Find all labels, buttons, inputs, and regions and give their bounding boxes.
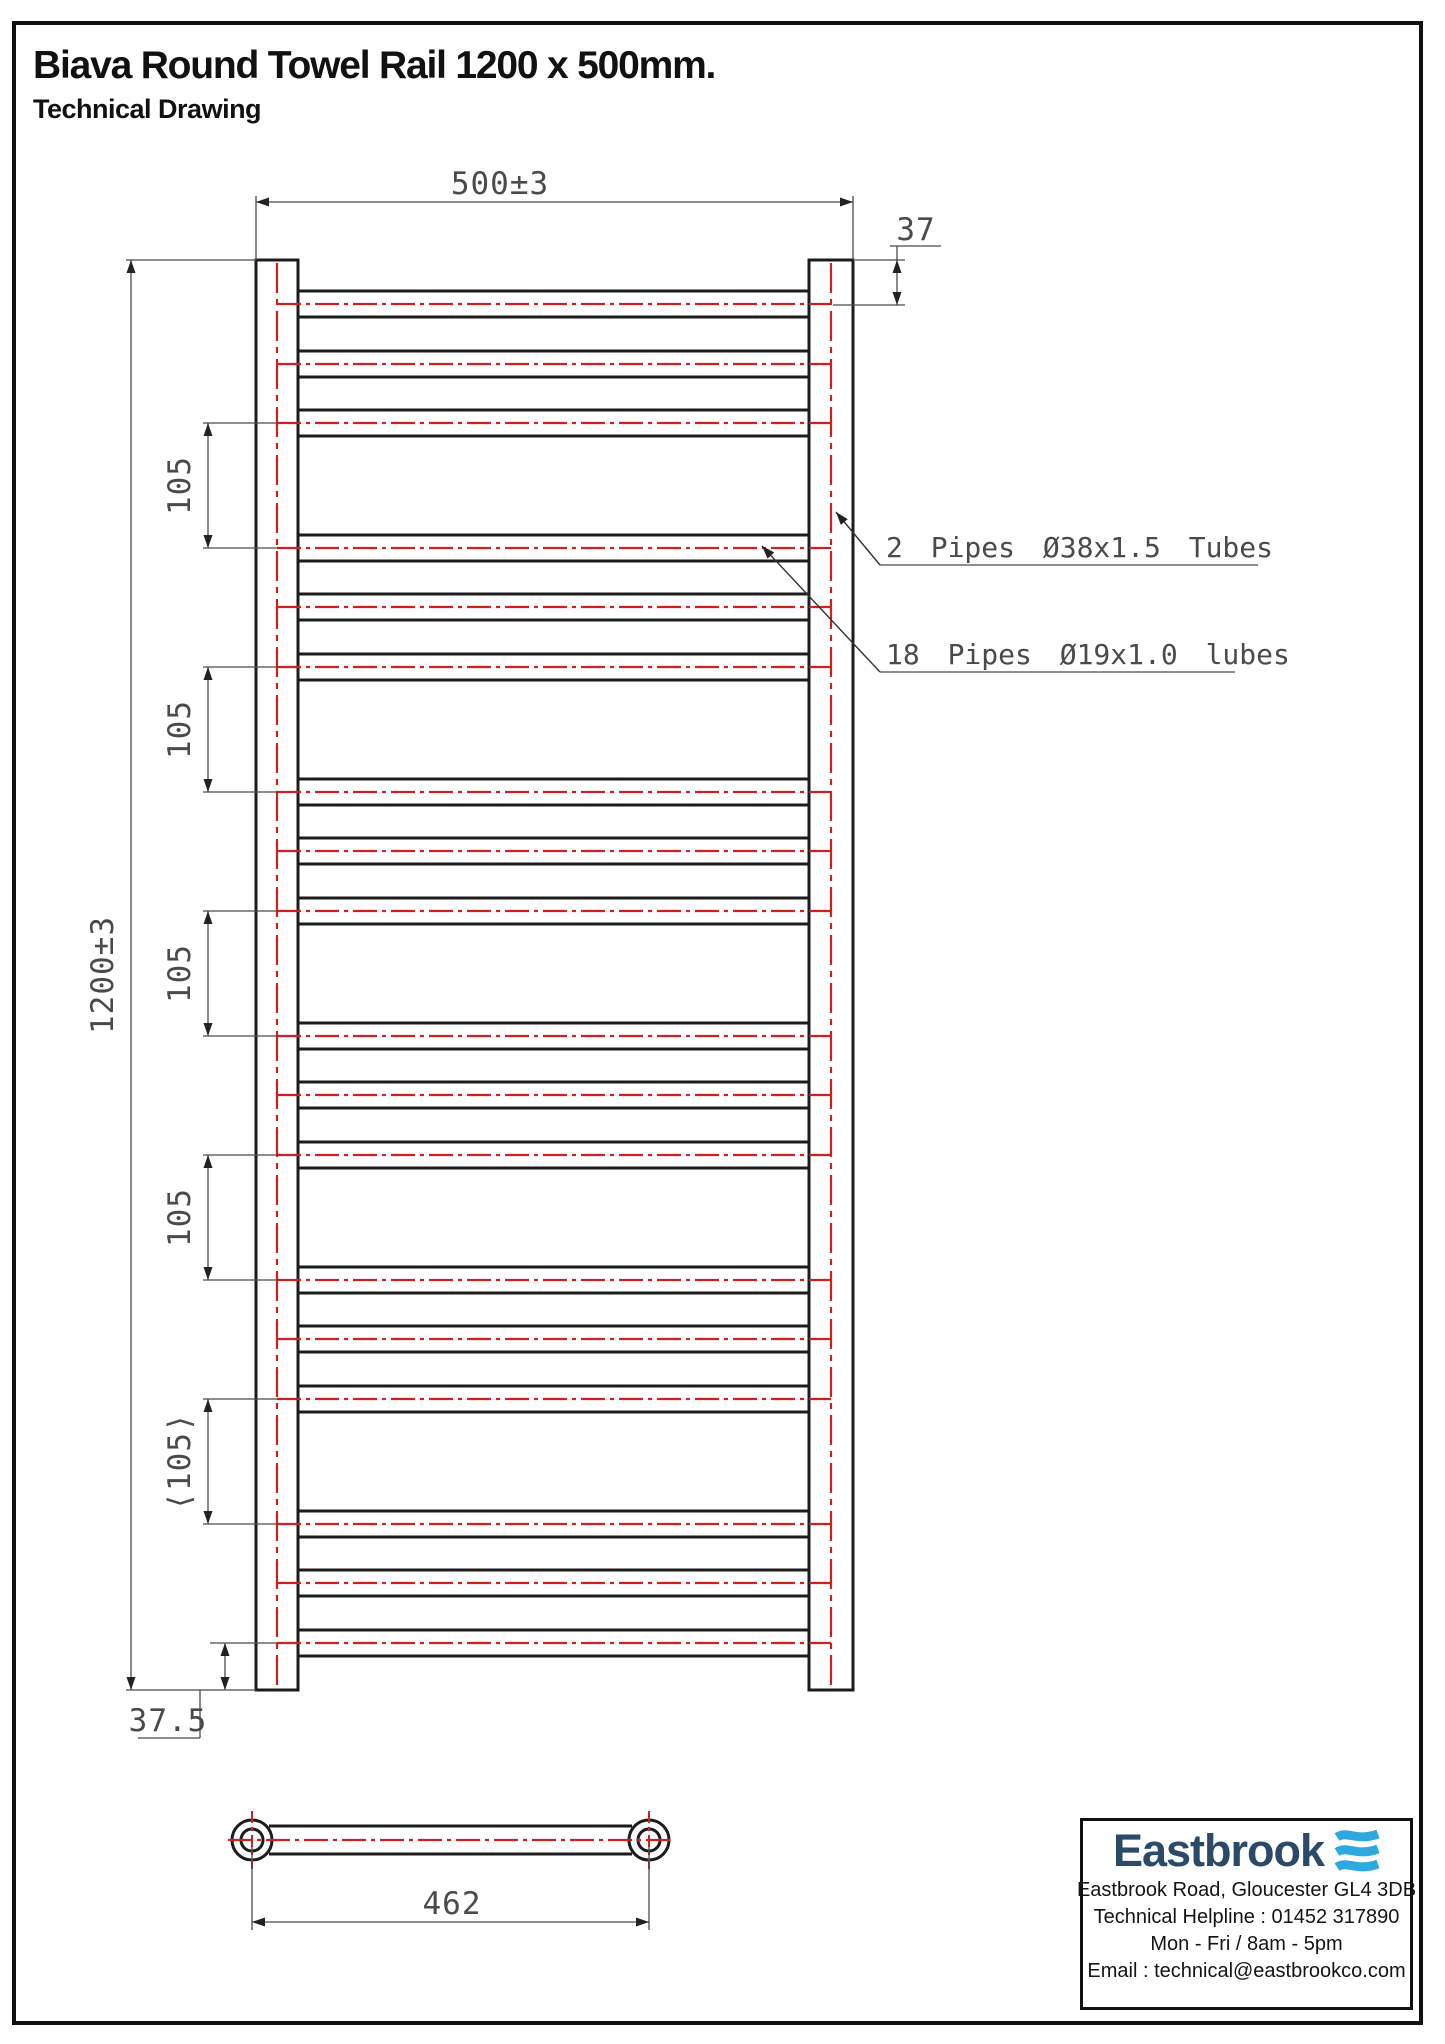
eastbrook-waves-icon	[1334, 1829, 1380, 1873]
dimension-arrowhead	[204, 911, 213, 924]
dim-label-pitch: 105	[162, 456, 198, 515]
eastbrook-logo-box: Eastbrook Eastbrook Road, Gloucester GL4…	[1080, 1818, 1413, 2010]
dimension-arrowhead	[204, 779, 213, 792]
note-rung-tubes-label: 18 Pipes Ø19x1.0 lubes	[886, 638, 1290, 671]
dim-label-bottom-offset: 37.5	[129, 1703, 208, 1739]
eastbrook-address: Eastbrook Road, Gloucester GL4 3DB	[1077, 1877, 1416, 1904]
dim-label-width: 500±3	[451, 166, 549, 202]
page: Biava Round Towel Rail 1200 x 500mm. Tec…	[0, 0, 1445, 2044]
eastbrook-helpline: Technical Helpline : 01452 317890	[1094, 1904, 1400, 1931]
dimension-arrowhead	[221, 1677, 230, 1690]
dimension-arrowhead	[204, 1511, 213, 1524]
dimension-arrowhead	[127, 260, 136, 273]
dim-label-pitch: 105	[162, 700, 198, 759]
dimension-arrowhead	[221, 1643, 230, 1656]
dimension-arrowhead	[204, 1155, 213, 1168]
dimension-arrowhead	[636, 1918, 649, 1927]
dim-label-bracket-centers: 462	[423, 1886, 482, 1922]
dim-label-height: 1200±3	[85, 916, 121, 1034]
dimension-arrowhead	[127, 1677, 136, 1690]
dimension-arrowhead	[204, 535, 213, 548]
dim-label-pitch: 105	[162, 944, 198, 1003]
dimension-arrowhead	[204, 1267, 213, 1280]
technical-drawing: 500±31200±33737.5105105105105⟨105⟩2 Pipe…	[0, 0, 1445, 2044]
dimension-arrowhead	[204, 1023, 213, 1036]
eastbrook-logo-row: Eastbrook	[1113, 1825, 1380, 1877]
dimension-arrowhead	[256, 198, 269, 207]
dimension-arrowhead	[204, 1399, 213, 1412]
dim-label-pitch: 105	[162, 1188, 198, 1247]
dimension-arrowhead	[204, 667, 213, 680]
dimension-arrowhead	[893, 292, 902, 305]
dim-label-pitch: ⟨105⟩	[162, 1412, 198, 1510]
red-centerlines	[277, 263, 831, 1687]
dimension-arrowhead	[893, 260, 902, 273]
eastbrook-logo-text: Eastbrook	[1113, 1827, 1324, 1875]
note-vertical-tubes-label: 2 Pipes Ø38x1.5 Tubes	[886, 531, 1273, 564]
dimension-arrowhead	[252, 1918, 265, 1927]
eastbrook-email: Email : technical@eastbrookco.com	[1087, 1958, 1405, 1985]
bottom-plan-view: 462	[228, 1811, 672, 1930]
dimension-arrowhead	[840, 198, 853, 207]
dimension-arrowhead	[204, 423, 213, 436]
eastbrook-hours: Mon - Fri / 8am - 5pm	[1150, 1931, 1342, 1958]
front-view	[256, 260, 853, 1690]
dim-label-top-offset: 37	[896, 212, 935, 248]
